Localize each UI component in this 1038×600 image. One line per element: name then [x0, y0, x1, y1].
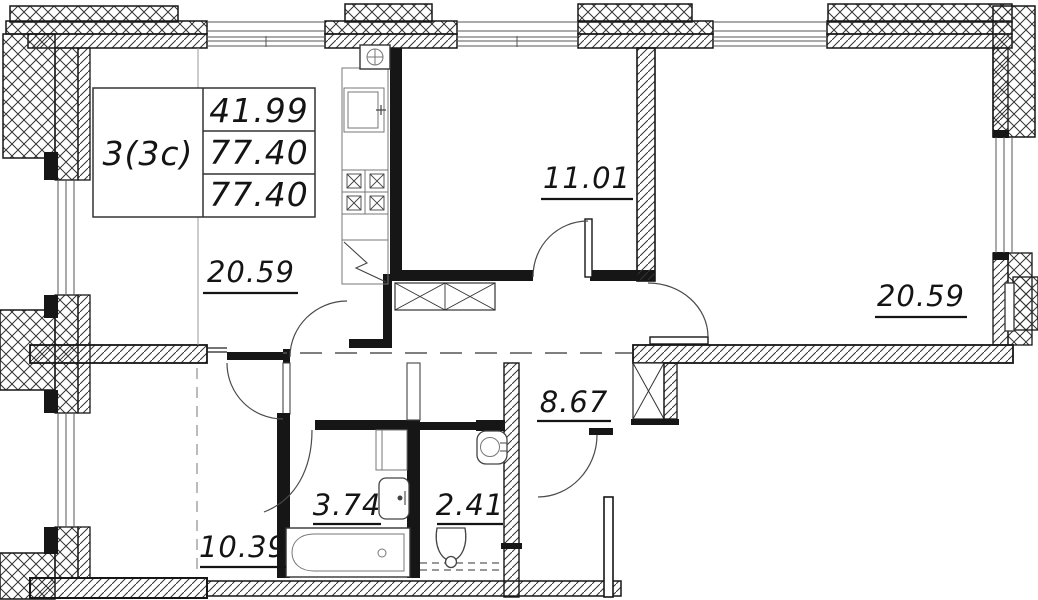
area-row-1: 41.99 — [209, 91, 308, 130]
label-hallway: 8.67 — [540, 385, 609, 419]
unit-type-label: 3(3c) — [103, 134, 194, 173]
floor-plan-page: 3(3c) 41.99 77.40 77.40 20.59 11.01 20.5… — [0, 0, 1038, 600]
fridge-icon — [342, 240, 388, 284]
door-entrance — [538, 428, 613, 497]
label-room-bottom-left: 10.39 — [199, 530, 287, 564]
washing-machine-icon — [376, 430, 407, 470]
area-row-3: 77.40 — [209, 175, 308, 214]
corner-sink-icon — [477, 431, 507, 464]
kitchen-fixtures — [342, 45, 390, 284]
label-wc: 2.41 — [436, 488, 505, 522]
window-top-1 — [207, 36, 325, 47]
pilaster-right — [1013, 277, 1038, 330]
pilaster-top-left — [3, 34, 55, 158]
bottom-wall-left — [30, 578, 207, 598]
kitchen-sink-icon — [344, 88, 386, 132]
bottom-wall-right — [633, 345, 1013, 363]
closet-icon — [395, 283, 495, 310]
wc-door-leaf — [476, 420, 505, 431]
radiator-icon — [1005, 283, 1014, 331]
electric-panel-icon — [360, 45, 390, 69]
title-block: 3(3c) 41.99 77.40 77.40 — [93, 88, 315, 217]
door-room-bottom-left — [227, 352, 283, 419]
floor-plan-svg: 3(3c) 41.99 77.40 77.40 20.59 11.01 20.5… — [0, 0, 1038, 600]
toilet-icon — [436, 528, 466, 568]
stove-icon — [342, 170, 388, 214]
label-bedroom-top: 11.01 — [543, 161, 631, 195]
label-bathroom: 3.74 — [313, 488, 382, 522]
washbasin-icon — [379, 478, 409, 519]
bottom-wall-mid — [207, 581, 621, 596]
area-row-2: 77.40 — [209, 133, 308, 172]
window-left-1 — [58, 180, 74, 295]
shaft-icon — [631, 363, 679, 425]
parapet-top-right — [828, 4, 1012, 22]
label-living: 20.59 — [207, 255, 295, 289]
parapet-top-mid2 — [578, 4, 692, 22]
label-bedroom-right: 20.59 — [877, 279, 965, 313]
parapet-top-left — [10, 6, 178, 22]
door-living — [290, 301, 347, 357]
window-top-2 — [457, 36, 578, 47]
door-bedroom-top — [533, 219, 592, 277]
window-right — [996, 137, 1012, 253]
window-top-3 — [713, 37, 827, 46]
room-labels: 20.59 11.01 20.59 8.67 10.39 3.74 2.41 — [199, 161, 967, 567]
bathtub-icon — [286, 528, 410, 577]
parapet-top-mid1 — [345, 4, 432, 22]
door-bedroom-right — [648, 283, 708, 344]
window-left-2 — [58, 413, 74, 527]
